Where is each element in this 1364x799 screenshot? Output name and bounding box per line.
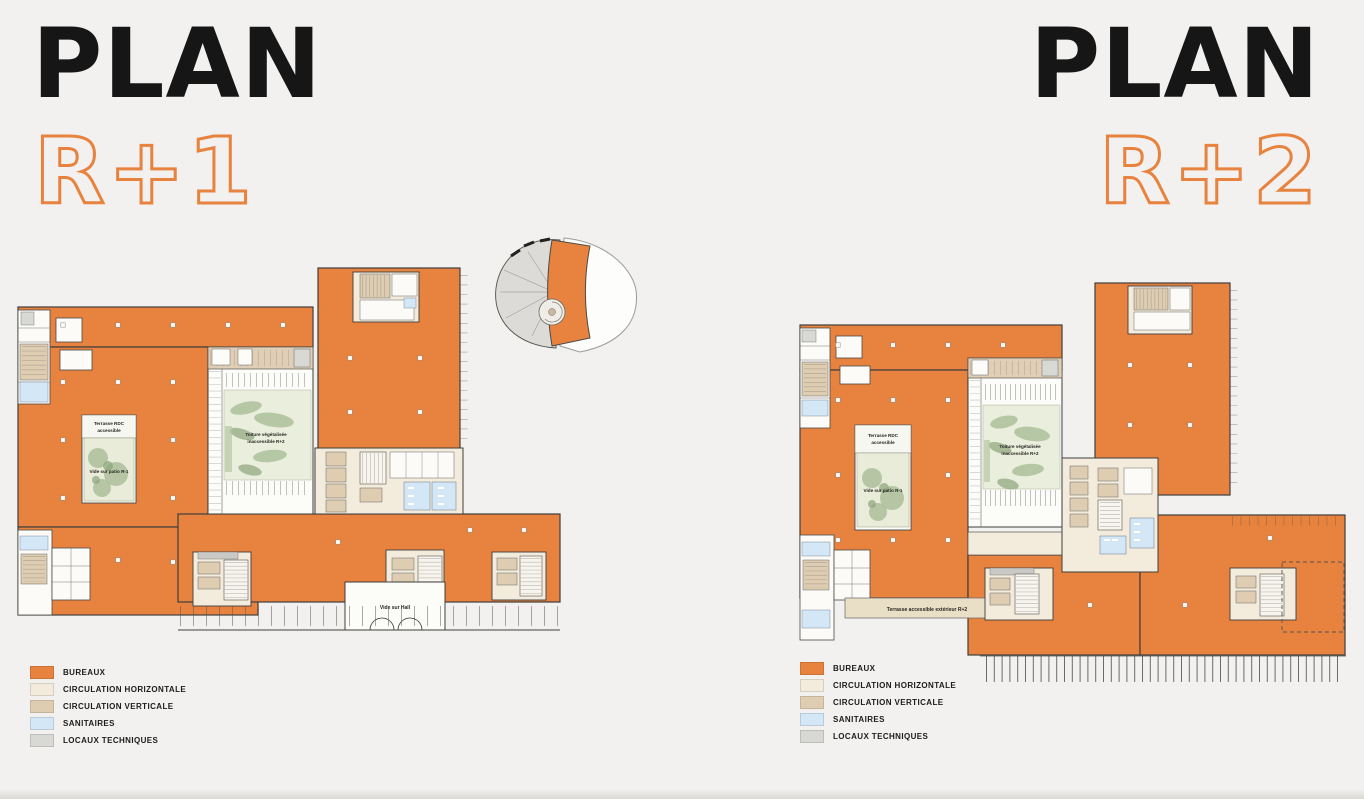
label-terrasse-exterieure: Terrasse accessible extérieur R+2 [887,607,968,613]
legend-item-sanitaires: SANITAIRES [800,713,956,725]
presentation-page: PLAN R+1 PLAN R+2 [0,0,1364,799]
svg-text:inaccessible R+2: inaccessible R+2 [247,439,285,444]
patio-terrace: Terrasse RDC accessible Vide sur patio R… [82,415,136,503]
legend-item-circulation-horizontale: CIRCULATION HORIZONTALE [30,683,186,695]
legend-swatch-locaux-techniques [800,730,824,743]
legend-swatch-bureaux [800,662,824,675]
legend-item-sanitaires: SANITAIRES [30,717,186,729]
legend-item-locaux-techniques: LOCAUX TECHNIQUES [30,734,186,746]
label-toiture-vegetalisee: Toiture végétalisée [999,444,1041,449]
label-toiture-vegetalisee: Toiture végétalisée [245,432,287,437]
stair-core-north [1128,286,1192,334]
legend-swatch-circulation-verticale [800,696,824,709]
label-vide-patio: Vide sur patio R-1 [864,488,903,493]
stair-cluster-lower-left [193,552,251,606]
legend-label: LOCAUX TECHNIQUES [63,736,158,745]
svg-text:inaccessible R+2: inaccessible R+2 [1001,451,1039,456]
legend-label: CIRCULATION HORIZONTALE [63,685,186,694]
floor-plan-r2-drawing: Terrasse RDC accessible Vide sur patio R… [790,250,1364,690]
legend-item-circulation-verticale: CIRCULATION VERTICALE [800,696,956,708]
stair-turret-rotunda [496,238,637,352]
label-vide-patio: Vide sur patio R-1 [90,469,129,474]
legend-item-bureaux: BUREAUX [800,662,956,674]
label-terrasse-rdc: Terrasse RDC [94,421,125,426]
patio-terrace: Terrasse RDC accessible Vide sur patio R… [855,425,911,530]
stair-cluster-lower-left [985,568,1053,620]
legend-label: BUREAUX [63,668,105,677]
legend-label: SANITAIRES [833,715,885,724]
legend-item-circulation-verticale: CIRCULATION VERTICALE [30,700,186,712]
pergola-ticks-bottom [980,656,1346,669]
svg-text:accessible: accessible [97,428,121,433]
legend-swatch-circulation-verticale [30,700,54,713]
legend-swatch-sanitaires [800,713,824,726]
legend-label: CIRCULATION VERTICALE [833,698,943,707]
page-bottom-edge [0,789,1364,799]
vide-sur-hall: Vide sur Hall [345,582,445,630]
service-rooms-bottom-left [800,535,870,640]
legend-item-circulation-horizontale: CIRCULATION HORIZONTALE [800,679,956,691]
central-core [1062,458,1158,572]
central-core [315,448,463,514]
legend-swatch-circulation-horizontale [800,679,824,692]
legend-item-locaux-techniques: LOCAUX TECHNIQUES [800,730,956,742]
page-title-plan-left: PLAN [32,16,322,112]
label-vide-sur-hall: Vide sur Hall [380,605,411,611]
page-title-plan-right: PLAN [1030,16,1320,112]
legend-swatch-sanitaires [30,717,54,730]
svg-text:accessible: accessible [871,440,895,445]
legend-label: LOCAUX TECHNIQUES [833,732,928,741]
floor-plan-r1-drawing: Terrasse RDC accessible Vide sur patio R… [8,230,658,670]
legend-swatch-circulation-horizontale [30,683,54,696]
legend-r1: BUREAUX CIRCULATION HORIZONTALE CIRCULAT… [30,666,186,746]
label-terrasse-rdc: Terrasse RDC [868,433,899,438]
legend-swatch-locaux-techniques [30,734,54,747]
courtyard-green-roof: Toiture végétalisée inaccessible R+2 [208,347,313,514]
legend-label: BUREAUX [833,664,875,673]
legend-item-bureaux: BUREAUX [30,666,186,678]
legend-label: CIRCULATION HORIZONTALE [833,681,956,690]
page-title-level-r2: R+2 [1099,126,1320,218]
stair-cluster-lower-right [1230,568,1296,620]
legend-swatch-bureaux [30,666,54,679]
courtyard-green-roof: Toiture végétalisée inaccessible R+2 [968,358,1062,527]
legend-label: SANITAIRES [63,719,115,728]
page-title-level-r1: R+1 [34,126,255,218]
stair-core-north [353,272,419,322]
legend-label: CIRCULATION VERTICALE [63,702,173,711]
legend-r2: BUREAUX CIRCULATION HORIZONTALE CIRCULAT… [800,662,956,742]
stair-cluster-lower-right [492,552,546,600]
